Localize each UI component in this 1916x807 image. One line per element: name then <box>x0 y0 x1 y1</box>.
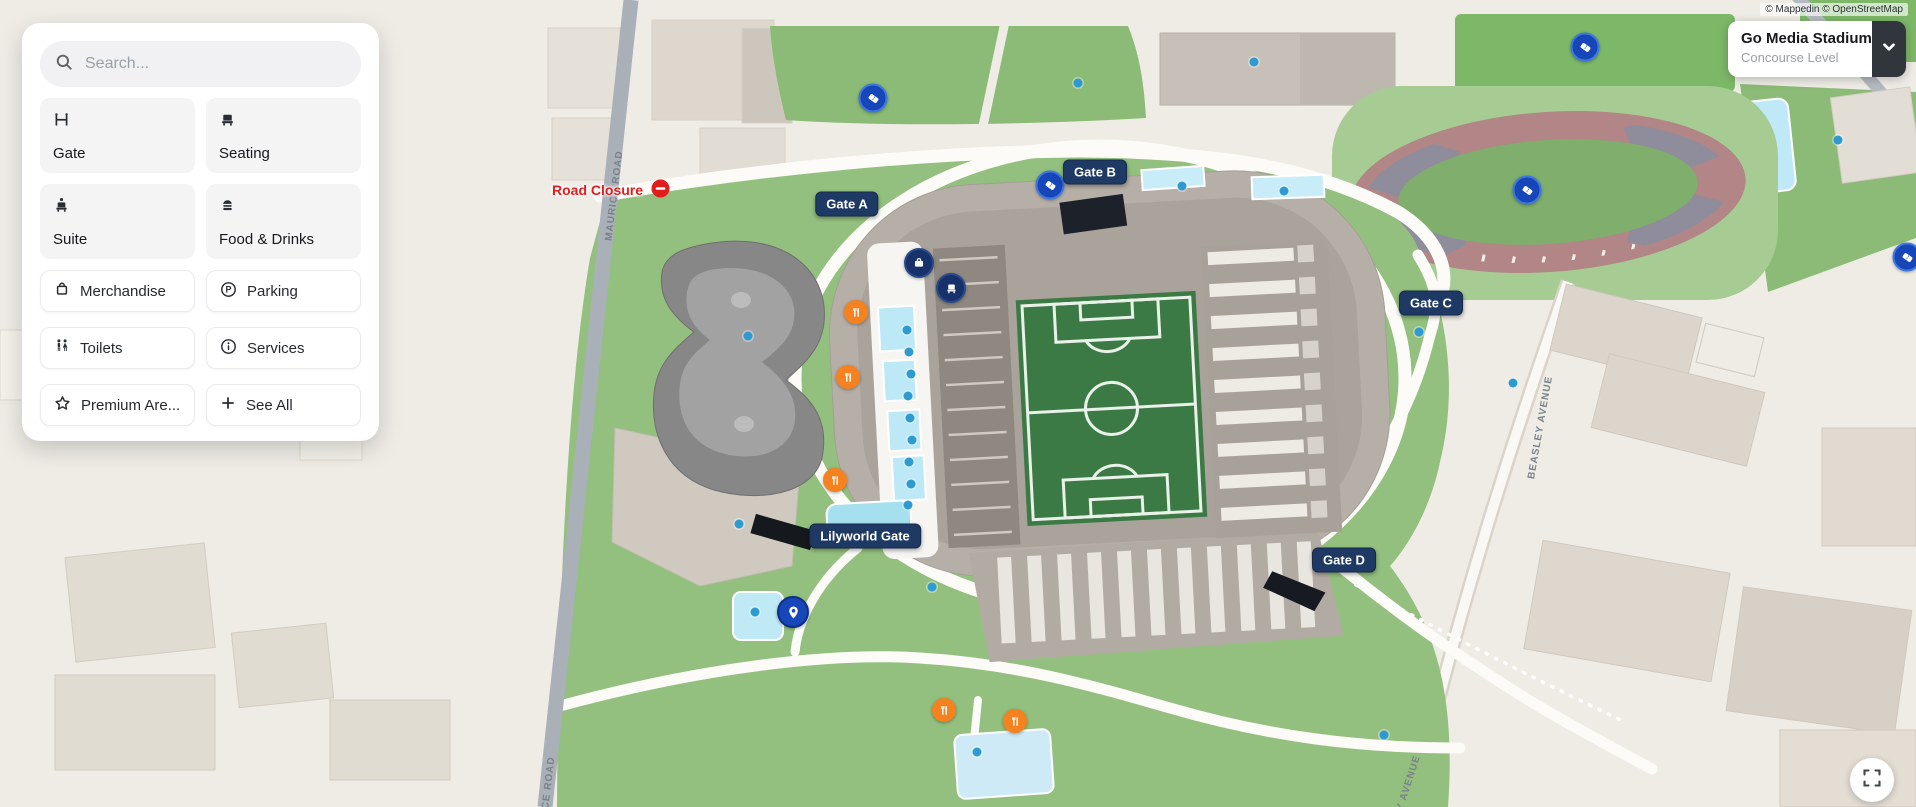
parking-icon: P <box>220 281 237 302</box>
venue-name: Go Media Stadium <box>1741 30 1872 47</box>
category-label: Toilets <box>80 340 123 357</box>
category-label: Services <box>247 340 305 357</box>
ticket-marker[interactable] <box>1513 176 1542 205</box>
food-icon <box>219 197 348 219</box>
category-label: Gate <box>53 145 182 162</box>
poi-dot[interactable] <box>1415 328 1424 337</box>
road-closure-text: Road Closure <box>552 182 643 198</box>
search-bar[interactable] <box>40 41 361 87</box>
category-label: Food & Drinks <box>219 231 348 248</box>
category-label: Merchandise <box>80 283 166 300</box>
poi-dot[interactable] <box>928 583 937 592</box>
road-closure-annotation: Road Closure <box>552 179 670 201</box>
map-label-gate-c[interactable]: Gate C <box>1399 291 1463 316</box>
category-label: Suite <box>53 231 182 248</box>
poi-dot[interactable] <box>1834 136 1843 145</box>
food-marker[interactable] <box>1003 709 1027 733</box>
plus-icon <box>220 395 236 415</box>
poi-dot[interactable] <box>1280 187 1289 196</box>
poi-dot[interactable] <box>904 501 913 510</box>
category-label: Premium Are... <box>81 397 180 414</box>
chevron-down-icon <box>1880 38 1898 61</box>
map-label-gate-d[interactable]: Gate D <box>1312 548 1376 573</box>
food-marker[interactable] <box>932 698 956 722</box>
search-icon <box>55 53 73 76</box>
category-tile-food-drinks[interactable]: Food & Drinks <box>206 184 361 259</box>
venue-selector: Go Media Stadium Concourse Level <box>1728 21 1906 77</box>
poi-dot[interactable] <box>904 392 913 401</box>
food-marker[interactable] <box>823 468 847 492</box>
poi-dot[interactable] <box>905 348 914 357</box>
poi-dot[interactable] <box>907 370 916 379</box>
poi-dot[interactable] <box>1509 379 1518 388</box>
seat-marker[interactable] <box>936 273 966 303</box>
search-input[interactable] <box>83 54 346 74</box>
food-marker[interactable] <box>836 365 860 389</box>
poi-dot[interactable] <box>744 332 753 341</box>
category-pills: Merchandise P Parking Toilets Services <box>40 270 361 426</box>
food-marker[interactable] <box>844 300 868 324</box>
poi-dot[interactable] <box>903 326 912 335</box>
poi-dot[interactable] <box>735 520 744 529</box>
poi-dot[interactable] <box>1178 182 1187 191</box>
fullscreen-button[interactable] <box>1850 758 1894 802</box>
seat-icon <box>219 111 348 133</box>
search-panel: Gate Seating Suite Food & Drinks <box>22 23 379 441</box>
category-pill-premium-areas[interactable]: Premium Are... <box>40 384 195 426</box>
category-tile-seating[interactable]: Seating <box>206 98 361 173</box>
poi-dot[interactable] <box>906 414 915 423</box>
bag-marker[interactable] <box>904 248 934 278</box>
gate-icon <box>53 111 182 133</box>
ticket-marker[interactable] <box>1893 243 1916 272</box>
venue-dropdown-button[interactable] <box>1872 21 1906 77</box>
category-pill-toilets[interactable]: Toilets <box>40 327 195 369</box>
poi-dot[interactable] <box>1380 731 1389 740</box>
info-icon <box>220 338 237 359</box>
poi-dot[interactable] <box>751 608 760 617</box>
pin-marker[interactable] <box>777 596 809 628</box>
poi-dot[interactable] <box>973 748 982 757</box>
category-pill-merchandise[interactable]: Merchandise <box>40 270 195 312</box>
map-label-gate-b[interactable]: Gate B <box>1063 160 1127 185</box>
venue-info: Go Media Stadium Concourse Level <box>1728 21 1872 77</box>
category-label: Seating <box>219 145 348 162</box>
toilets-icon <box>54 338 70 358</box>
suite-seat-icon <box>53 197 182 219</box>
svg-text:P: P <box>225 284 231 294</box>
ticket-marker[interactable] <box>1036 171 1065 200</box>
category-pill-see-all[interactable]: See All <box>206 384 361 426</box>
map-label-gate-a[interactable]: Gate A <box>815 192 878 217</box>
shopping-bag-icon <box>54 281 70 301</box>
map-label-lilyworld-gate[interactable]: Lilyworld Gate <box>809 524 921 549</box>
poi-dot[interactable] <box>1250 58 1259 67</box>
star-icon <box>54 395 71 416</box>
category-pill-parking[interactable]: P Parking <box>206 270 361 312</box>
poi-dot[interactable] <box>1074 79 1083 88</box>
category-label: See All <box>246 397 293 414</box>
category-label: Parking <box>247 283 298 300</box>
map-attribution: © Mappedin © OpenStreetMap <box>1760 3 1908 16</box>
ticket-marker[interactable] <box>859 84 888 113</box>
category-pill-services[interactable]: Services <box>206 327 361 369</box>
poi-dot[interactable] <box>908 436 917 445</box>
venue-level: Concourse Level <box>1741 50 1872 65</box>
fullscreen-icon <box>1862 768 1882 793</box>
category-tile-gate[interactable]: Gate <box>40 98 195 173</box>
stadium-map-app: MAURICE ROAD MAURICE ROAD BEASLEY AVENUE… <box>0 0 1916 807</box>
category-tile-suite[interactable]: Suite <box>40 184 195 259</box>
ticket-marker[interactable] <box>1571 33 1600 62</box>
no-entry-icon <box>651 179 670 201</box>
category-tiles: Gate Seating Suite Food & Drinks <box>40 98 361 259</box>
poi-dot[interactable] <box>905 458 914 467</box>
poi-dot[interactable] <box>907 480 916 489</box>
